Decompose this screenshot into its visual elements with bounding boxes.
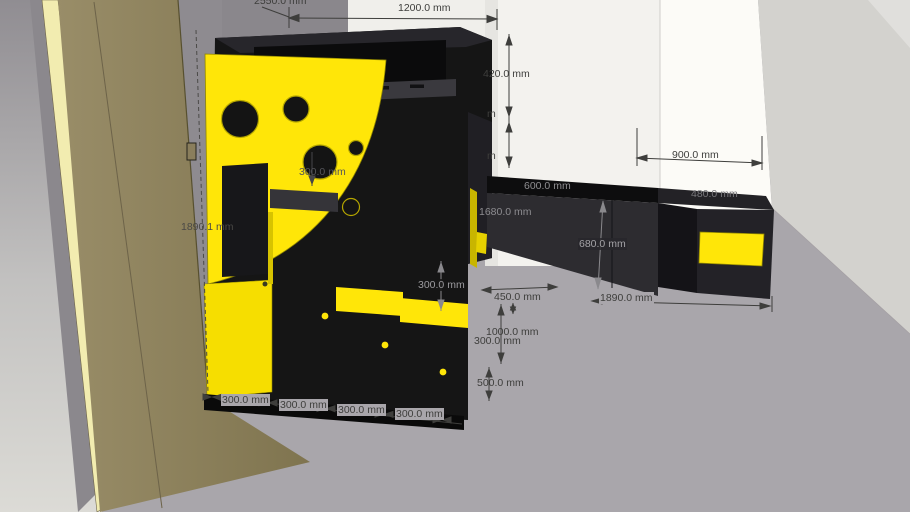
scene-canvas	[0, 0, 910, 512]
dimension-label-rise-overlap: 300.0 mm	[474, 335, 521, 347]
dimension-label-hidden-lower: m	[487, 150, 496, 162]
dimension-label-step-rise: 300.0 mm	[417, 279, 466, 291]
yellow-fragment-1	[470, 188, 477, 268]
dimension-label-counter-height: 680.0 mm	[578, 238, 627, 250]
step-tread-gray	[270, 189, 338, 212]
step-tread-yellow-1	[336, 287, 403, 316]
dimension-label-tread-2: 300.0 mm	[279, 399, 328, 411]
right-cabinet-side	[658, 203, 697, 293]
dimension-label-door-height: 1890.1 mm	[181, 221, 234, 233]
dimension-label-right-cabinet-w: 480.0 mm	[691, 188, 738, 200]
dimension-label-panel-300: 300.0 mm	[299, 166, 346, 178]
dimension-label-tread-3: 300.0 mm	[337, 404, 386, 416]
yellow-edge-sliver	[268, 212, 273, 284]
dimension-label-wall-height: 2550.0 mm	[254, 0, 307, 7]
yellow-fragment-2	[476, 232, 487, 254]
dimension-label-structure-height: 1680.0 mm	[479, 206, 532, 218]
3d-model-viewport[interactable]: 2550.0 mm 1200.0 mm 420.0 mm m m 900.0 m…	[0, 0, 910, 512]
dimension-label-hidden-upper: m	[487, 108, 496, 120]
yellow-drawer-front	[699, 232, 764, 266]
lower-yellow-panel	[204, 280, 272, 398]
dimension-label-counter-depth: 600.0 mm	[524, 180, 571, 192]
left-inset-opening	[222, 163, 268, 277]
white-wall-b	[660, 0, 772, 214]
dimension-label-right-wall-width: 900.0 mm	[672, 149, 719, 161]
dimension-label-counter-run: 1890.0 mm	[599, 292, 654, 304]
dimension-label-tread-4: 300.0 mm	[395, 408, 444, 420]
dimension-label-top-width: 1200.0 mm	[398, 2, 451, 14]
dimension-label-upper-cabinet-h: 420.0 mm	[483, 68, 530, 80]
dimension-label-front-gap: 450.0 mm	[494, 291, 541, 303]
dimension-label-base-500: 500.0 mm	[477, 377, 524, 389]
door-hinge	[187, 143, 196, 160]
screw-hole-1	[263, 282, 268, 287]
dimension-label-tread-1: 300.0 mm	[221, 394, 270, 406]
